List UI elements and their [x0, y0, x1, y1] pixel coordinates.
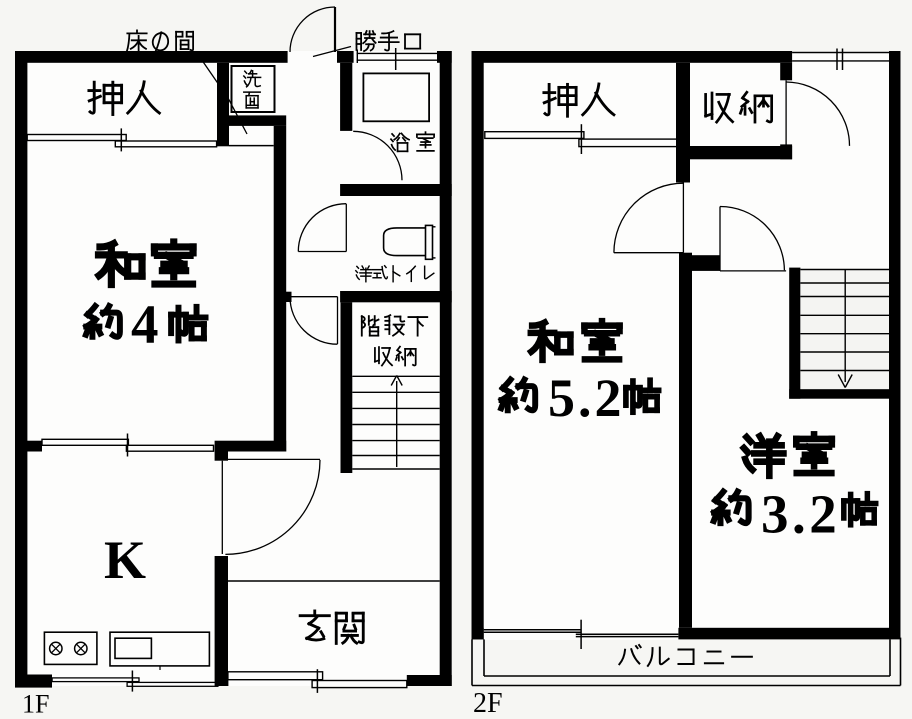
svg-text:3.2: 3.2 — [761, 484, 840, 545]
svg-text:4: 4 — [131, 294, 159, 355]
svg-text:K: K — [104, 530, 146, 590]
svg-text:2F: 2F — [473, 688, 503, 719]
svg-text:5.2: 5.2 — [548, 368, 625, 428]
svg-text:1F: 1F — [22, 690, 49, 719]
